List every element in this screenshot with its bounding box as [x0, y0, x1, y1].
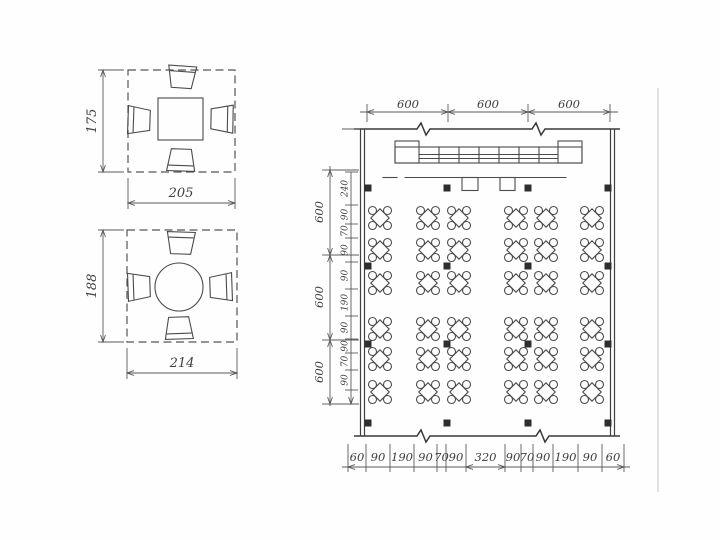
chair-circle: [417, 254, 425, 262]
pillar: [605, 263, 612, 270]
chair-circle: [520, 381, 528, 389]
chair-circle: [581, 318, 589, 326]
table-top-diamond: [537, 209, 555, 227]
chair-circle: [596, 287, 604, 295]
pillar: [444, 263, 451, 270]
table-symbol: [505, 239, 528, 262]
left-outer-dim-label: 600: [312, 361, 326, 383]
chair-circle: [505, 222, 513, 230]
chair-circle: [520, 363, 528, 371]
chair-circle: [535, 348, 543, 356]
chair-circle: [463, 287, 471, 295]
top-wall: [354, 123, 620, 135]
chair-circle: [384, 272, 392, 280]
table-top-diamond: [537, 320, 555, 338]
chair-circle: [596, 239, 604, 247]
top-dim-label: 600: [558, 97, 580, 111]
bottom-dim-label: 190: [555, 450, 577, 464]
table-top-diamond: [419, 274, 437, 292]
left-inner-dim-label: 90: [341, 340, 351, 352]
chair-circle: [369, 396, 377, 404]
chair-circle: [535, 363, 543, 371]
chair-circle: [384, 254, 392, 262]
chair-circle: [505, 207, 513, 215]
round-table-width-label: 214: [169, 356, 195, 371]
chair-circle: [463, 254, 471, 262]
table-symbol: [581, 318, 604, 341]
chair-circle: [432, 254, 440, 262]
chair-circle: [417, 333, 425, 341]
chair-circle: [432, 239, 440, 247]
figure-round-table-detail: 188214: [85, 230, 237, 379]
chair-circle: [448, 348, 456, 356]
chair-circle: [505, 272, 513, 280]
table-top-diamond: [419, 209, 437, 227]
chair-circle: [463, 348, 471, 356]
chair-circle: [581, 222, 589, 230]
square-table-height-label: 175: [85, 109, 100, 134]
chair-circle: [384, 363, 392, 371]
bottom-dim-label: 60: [350, 450, 365, 464]
pillar: [525, 420, 532, 427]
table-top-diamond: [371, 383, 389, 401]
cashier-stand-left: [462, 178, 478, 191]
chair-circle: [535, 254, 543, 262]
chair-circle: [535, 396, 543, 404]
chair-circle: [369, 254, 377, 262]
chair-circle: [448, 222, 456, 230]
table-symbol: [535, 348, 558, 371]
chair-circle: [448, 272, 456, 280]
left-inner-dim-label: 70: [341, 225, 351, 237]
pillar: [525, 341, 532, 348]
table-top-diamond: [583, 320, 601, 338]
chair-circle: [535, 287, 543, 295]
table-symbol: [417, 207, 440, 230]
chair-circle: [505, 318, 513, 326]
top-dim-label: 600: [477, 97, 499, 111]
chair-circle: [417, 287, 425, 295]
chair-circle: [550, 396, 558, 404]
table-top-diamond: [507, 383, 525, 401]
left-outer-dim-label: 600: [312, 286, 326, 308]
chair-symbol: [167, 149, 196, 172]
cafeteria-floor-plan-drawing: 175205 188214: [0, 0, 720, 540]
table-top-diamond: [371, 241, 389, 259]
square-table-top: [158, 98, 203, 140]
table-symbol: [369, 318, 392, 341]
chair-circle: [550, 222, 558, 230]
chair-circle: [369, 287, 377, 295]
pillar: [605, 185, 612, 192]
round-table-dimensions: 188214: [85, 230, 237, 379]
chair-circle: [596, 318, 604, 326]
chair-circle: [520, 239, 528, 247]
table-symbol: [448, 381, 471, 404]
chair-circle: [369, 222, 377, 230]
left-inner-dim-label: 90: [341, 244, 351, 256]
chair-circle: [417, 272, 425, 280]
table-symbol: [535, 207, 558, 230]
pillar: [365, 185, 372, 192]
bottom-dim-label: 90: [536, 450, 551, 464]
chair-circle: [520, 318, 528, 326]
pillar: [605, 420, 612, 427]
pillar: [365, 341, 372, 348]
table-top-diamond: [583, 274, 601, 292]
chair-circle: [369, 348, 377, 356]
left-inner-dim-label: 90: [341, 270, 351, 282]
chair-circle: [463, 381, 471, 389]
chair-symbol: [128, 273, 151, 302]
table-top-diamond: [537, 241, 555, 259]
chair-circle: [550, 318, 558, 326]
chair-circle: [463, 333, 471, 341]
chair-circle: [520, 222, 528, 230]
chair-circle: [448, 381, 456, 389]
chair-circle: [520, 333, 528, 341]
chair-circle: [369, 272, 377, 280]
table-symbol: [448, 207, 471, 230]
bottom-dim-label: 90: [449, 450, 464, 464]
left-inner-dim-label: 90: [341, 374, 351, 386]
round-table-top: [155, 263, 203, 311]
chair-circle: [596, 363, 604, 371]
chair-circle: [550, 207, 558, 215]
bottom-dim-label: 70: [520, 450, 535, 464]
table-top-diamond: [450, 209, 468, 227]
chair-circle: [432, 381, 440, 389]
table-top-diamond: [507, 274, 525, 292]
pillar: [605, 341, 612, 348]
chair-circle: [432, 348, 440, 356]
pillar: [444, 341, 451, 348]
chair-circle: [581, 254, 589, 262]
table-top-diamond: [583, 383, 601, 401]
chair-circle: [463, 272, 471, 280]
chair-symbol: [167, 65, 196, 89]
chair-circle: [505, 287, 513, 295]
table-top-diamond: [371, 209, 389, 227]
chair-circle: [550, 287, 558, 295]
table-symbol: [369, 381, 392, 404]
table-top-diamond: [419, 320, 437, 338]
table-top-diamond: [583, 209, 601, 227]
chair-circle: [417, 222, 425, 230]
chair-circle: [505, 396, 513, 404]
chair-circle: [448, 318, 456, 326]
table-symbol: [505, 272, 528, 295]
table-symbol: [581, 239, 604, 262]
table-top-diamond: [537, 274, 555, 292]
chair-circle: [432, 272, 440, 280]
chair-circle: [384, 239, 392, 247]
left-inner-dim-label: 240: [341, 180, 351, 198]
table-symbol: [369, 272, 392, 295]
table-symbol: [581, 381, 604, 404]
table-symbol: [369, 239, 392, 262]
chair-circle: [369, 381, 377, 389]
chair-circle: [448, 363, 456, 371]
chair-circle: [505, 254, 513, 262]
chair-circle: [384, 287, 392, 295]
chair-circle: [463, 396, 471, 404]
chair-circle: [463, 363, 471, 371]
chair-circle: [463, 239, 471, 247]
counter-left-end-unit: [395, 141, 419, 163]
table-symbol: [369, 348, 392, 371]
table-top-diamond: [507, 320, 525, 338]
table-top-diamond: [450, 350, 468, 368]
chair-backrest-line: [167, 333, 191, 334]
chair-symbol: [165, 317, 194, 340]
chair-circle: [505, 239, 513, 247]
chair-circle: [448, 207, 456, 215]
chair-circle: [432, 318, 440, 326]
chair-symbol: [211, 105, 233, 133]
chair-circle: [505, 363, 513, 371]
chair-circle: [535, 272, 543, 280]
structural-pillars: [365, 185, 612, 427]
chair-circle: [550, 272, 558, 280]
chair-circle: [417, 396, 425, 404]
chair-backrest-line: [169, 237, 193, 238]
chair-circle: [432, 207, 440, 215]
chair-backrest-line: [133, 108, 134, 132]
pillar: [525, 263, 532, 270]
round-table-chairs: [128, 232, 233, 340]
chair-circle: [596, 348, 604, 356]
left-inner-dim-label: 90: [341, 322, 351, 334]
left-inner-dim-label: 70: [341, 356, 351, 368]
chair-circle: [432, 287, 440, 295]
table-symbol: [417, 272, 440, 295]
left-inner-dim-label: 190: [341, 294, 351, 311]
chair-circle: [448, 254, 456, 262]
chair-circle: [384, 381, 392, 389]
chair-circle: [448, 287, 456, 295]
bottom-dim-label: 190: [391, 450, 413, 464]
left-outer-dim-label: 600: [312, 201, 326, 223]
chair-circle: [596, 207, 604, 215]
table-symbol: [417, 381, 440, 404]
chair-circle: [505, 333, 513, 341]
table-symbol: [505, 318, 528, 341]
pillar: [525, 185, 532, 192]
table-symbol: [448, 318, 471, 341]
chair-symbol: [210, 273, 233, 302]
table-top-diamond: [507, 350, 525, 368]
table-top-diamond: [583, 350, 601, 368]
chair-circle: [535, 222, 543, 230]
chair-circle: [550, 363, 558, 371]
chair-circle: [384, 222, 392, 230]
table-symbol: [448, 272, 471, 295]
chair-symbol: [167, 232, 196, 255]
table-symbol: [535, 381, 558, 404]
table-symbol: [581, 207, 604, 230]
chair-circle: [369, 239, 377, 247]
chair-circle: [535, 333, 543, 341]
top-dim-label: 600: [397, 97, 419, 111]
technical-drawing-page: 175205 188214: [0, 0, 720, 540]
table-symbol: [581, 348, 604, 371]
chair-circle: [417, 318, 425, 326]
table-symbol: [505, 207, 528, 230]
chair-circle: [596, 333, 604, 341]
bottom-dim-label: 90: [371, 450, 386, 464]
table-top-diamond: [450, 274, 468, 292]
chair-circle: [581, 272, 589, 280]
chair-circle: [550, 254, 558, 262]
table-symbol: [581, 272, 604, 295]
chair-circle: [596, 381, 604, 389]
chair-circle: [520, 254, 528, 262]
chair-circle: [384, 396, 392, 404]
bottom-dim-label: 90: [418, 450, 433, 464]
pillar: [365, 420, 372, 427]
table-top-diamond: [450, 320, 468, 338]
chair-circle: [581, 363, 589, 371]
table-top-diamond: [371, 350, 389, 368]
chair-circle: [417, 363, 425, 371]
table-top-diamond: [583, 241, 601, 259]
bottom-dim-label: 60: [606, 450, 621, 464]
chair-circle: [505, 348, 513, 356]
table-top-diamond: [450, 383, 468, 401]
chair-circle: [384, 348, 392, 356]
chair-circle: [520, 272, 528, 280]
queue-rail: [383, 178, 566, 191]
pillar: [444, 420, 451, 427]
table-top-diamond: [450, 241, 468, 259]
pillar: [444, 185, 451, 192]
table-symbol: [417, 348, 440, 371]
table-top-diamond: [537, 350, 555, 368]
chair-backrest-line: [133, 275, 134, 299]
table-symbol: [417, 318, 440, 341]
chair-circle: [369, 207, 377, 215]
chair-circle: [581, 396, 589, 404]
chair-circle: [432, 333, 440, 341]
chair-symbol: [128, 106, 151, 135]
bottom-dim-label: 320: [475, 450, 497, 464]
round-table-zone-dashed-outline: [127, 230, 237, 342]
table-symbol: [417, 239, 440, 262]
table-symbol: [448, 239, 471, 262]
chair-circle: [596, 272, 604, 280]
chair-circle: [463, 222, 471, 230]
chair-circle: [520, 207, 528, 215]
chair-circle: [417, 381, 425, 389]
table-top-diamond: [537, 383, 555, 401]
table-top-diamond: [419, 350, 437, 368]
table-symbol: [505, 381, 528, 404]
table-symbol: [505, 348, 528, 371]
chair-circle: [581, 348, 589, 356]
table-top-diamond: [507, 209, 525, 227]
chair-circle: [417, 348, 425, 356]
counter-right-end-unit: [558, 141, 582, 163]
chair-circle: [505, 381, 513, 389]
chair-circle: [550, 348, 558, 356]
chair-circle: [520, 396, 528, 404]
table-top-diamond: [507, 241, 525, 259]
chair-circle: [535, 239, 543, 247]
chair-circle: [550, 381, 558, 389]
table-top-diamond: [371, 320, 389, 338]
bottom-dim-label: 90: [583, 450, 598, 464]
chair-circle: [384, 207, 392, 215]
chair-circle: [384, 333, 392, 341]
bottom-wall: [354, 430, 620, 442]
square-table-chairs: [128, 65, 234, 171]
chair-circle: [369, 318, 377, 326]
chair-circle: [448, 396, 456, 404]
serving-counter: [395, 141, 582, 163]
chair-circle: [596, 222, 604, 230]
bottom-dim-label: 70: [434, 450, 449, 464]
table-top-diamond: [371, 274, 389, 292]
pillar: [365, 263, 372, 270]
round-table-height-label: 188: [85, 274, 100, 299]
chair-circle: [417, 207, 425, 215]
dining-tables: [369, 207, 604, 404]
table-top-diamond: [419, 383, 437, 401]
chair-circle: [581, 333, 589, 341]
dining-hall-plan: 6006006006006006002409070909019090907090…: [312, 88, 658, 492]
figure-square-table-detail: 175205: [85, 65, 235, 209]
chair-circle: [581, 239, 589, 247]
chair-circle: [581, 381, 589, 389]
table-symbol: [535, 239, 558, 262]
chair-circle: [463, 207, 471, 215]
chair-circle: [596, 396, 604, 404]
chair-circle: [535, 381, 543, 389]
left-inner-dim-label: 90: [341, 209, 351, 221]
chair-backrest-line: [170, 71, 194, 73]
table-symbol: [535, 272, 558, 295]
chair-circle: [581, 287, 589, 295]
chair-circle: [463, 318, 471, 326]
cashier-stand-right: [500, 178, 515, 191]
table-symbol: [369, 207, 392, 230]
chair-backrest-line: [226, 275, 227, 299]
chair-circle: [520, 287, 528, 295]
chair-backrest-line: [169, 165, 193, 166]
square-table-width-label: 205: [168, 186, 194, 201]
table-symbol: [448, 348, 471, 371]
chair-circle: [535, 318, 543, 326]
chair-circle: [520, 348, 528, 356]
bottom-dim-label: 90: [506, 450, 521, 464]
chair-circle: [432, 396, 440, 404]
chair-circle: [550, 239, 558, 247]
chair-circle: [369, 333, 377, 341]
chair-circle: [384, 318, 392, 326]
chair-circle: [535, 207, 543, 215]
chair-circle: [596, 254, 604, 262]
chair-circle: [581, 207, 589, 215]
chair-circle: [432, 222, 440, 230]
chair-circle: [550, 333, 558, 341]
table-symbol: [535, 318, 558, 341]
square-table-zone-dashed-outline: [128, 70, 235, 172]
table-top-diamond: [419, 241, 437, 259]
chair-circle: [369, 363, 377, 371]
chair-circle: [448, 239, 456, 247]
chair-circle: [417, 239, 425, 247]
